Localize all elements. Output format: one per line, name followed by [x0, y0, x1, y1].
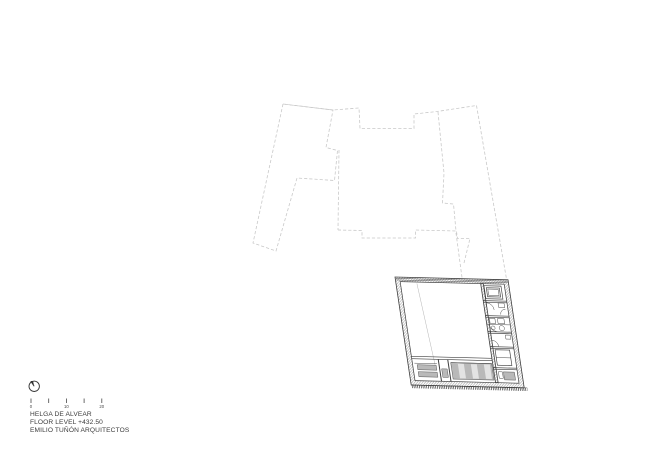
- stair-flight-right: [503, 372, 515, 380]
- duct-shaft: [442, 369, 449, 378]
- drawing-sheet: 0 10 20 HELGA DE ALVEAR FLOOR LEVEL +432…: [0, 0, 650, 458]
- site-outline-main-building: [338, 112, 456, 238]
- scale-label-20: 20: [99, 404, 104, 409]
- stair-flight-left-lower: [418, 372, 438, 377]
- stair-flight-left-upper: [417, 365, 437, 370]
- project-title: HELGA DE ALVEAR: [30, 411, 129, 419]
- floor-level: FLOOR LEVEL +432.50: [30, 419, 129, 427]
- leader-line-left: [456, 233, 462, 278]
- site-outline: [253, 104, 477, 263]
- floor-plan: [395, 277, 527, 390]
- site-outline-interior-divider: [338, 150, 339, 230]
- plan-sheet-svg: 0 10 20: [0, 0, 650, 458]
- site-outline-left-building: [253, 104, 338, 251]
- north-arrow-icon: [29, 381, 39, 391]
- leader-line-right: [477, 106, 507, 280]
- scale-label-10: 10: [64, 404, 69, 409]
- architect-name: EMILIO TUÑÓN ARQUITECTOS: [30, 427, 129, 435]
- scale-bar: 0 10 20: [30, 399, 105, 410]
- projection-leader-lines: [456, 106, 507, 280]
- scale-label-0: 0: [30, 404, 33, 409]
- title-block: HELGA DE ALVEAR FLOOR LEVEL +432.50 EMIL…: [30, 411, 129, 435]
- site-outline-corner-step: [457, 232, 471, 264]
